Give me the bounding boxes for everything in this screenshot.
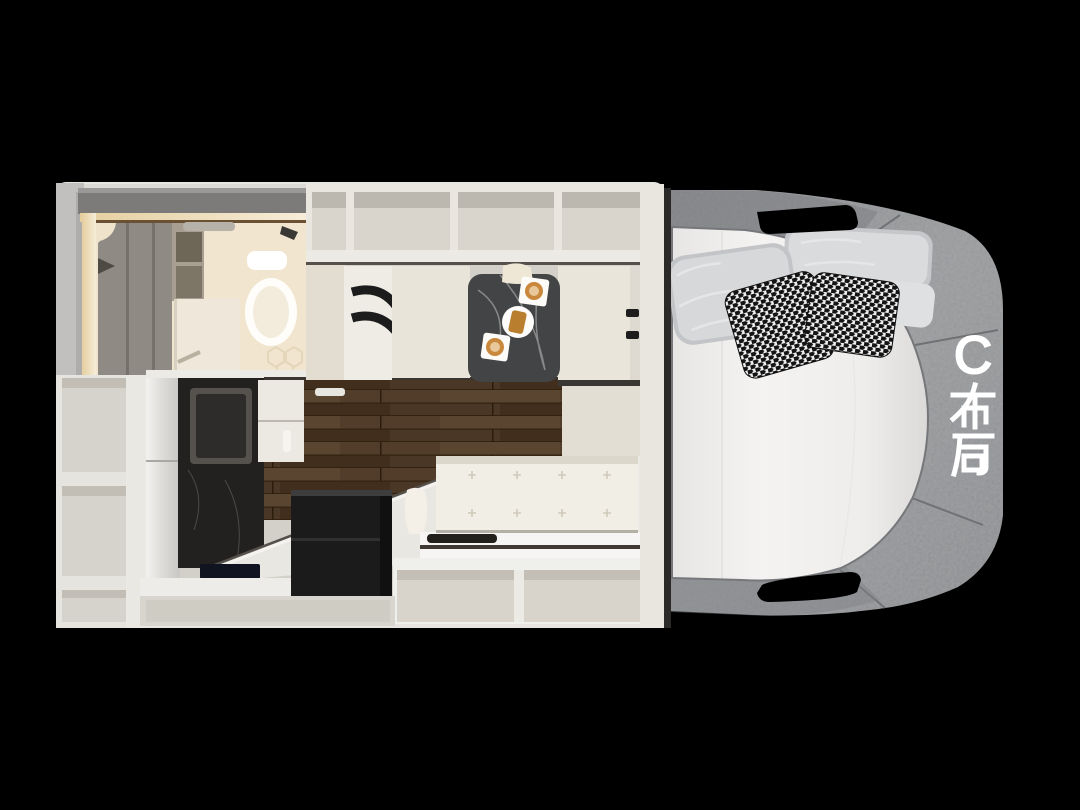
svg-text:C: C: [954, 326, 992, 385]
